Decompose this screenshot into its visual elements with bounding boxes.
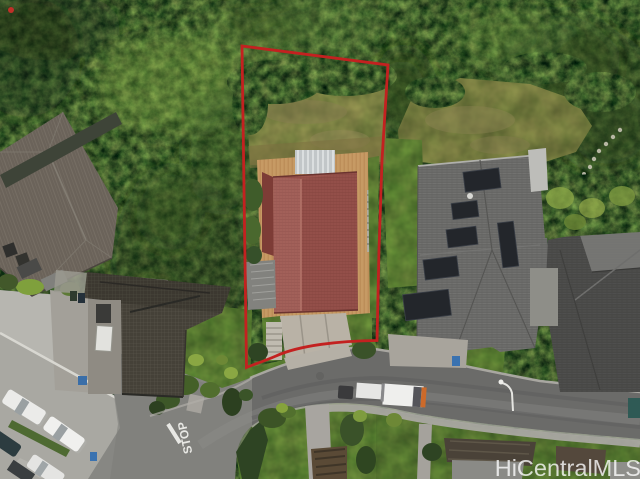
- svg-text:HiCentralMLS: HiCentralMLS: [495, 455, 640, 479]
